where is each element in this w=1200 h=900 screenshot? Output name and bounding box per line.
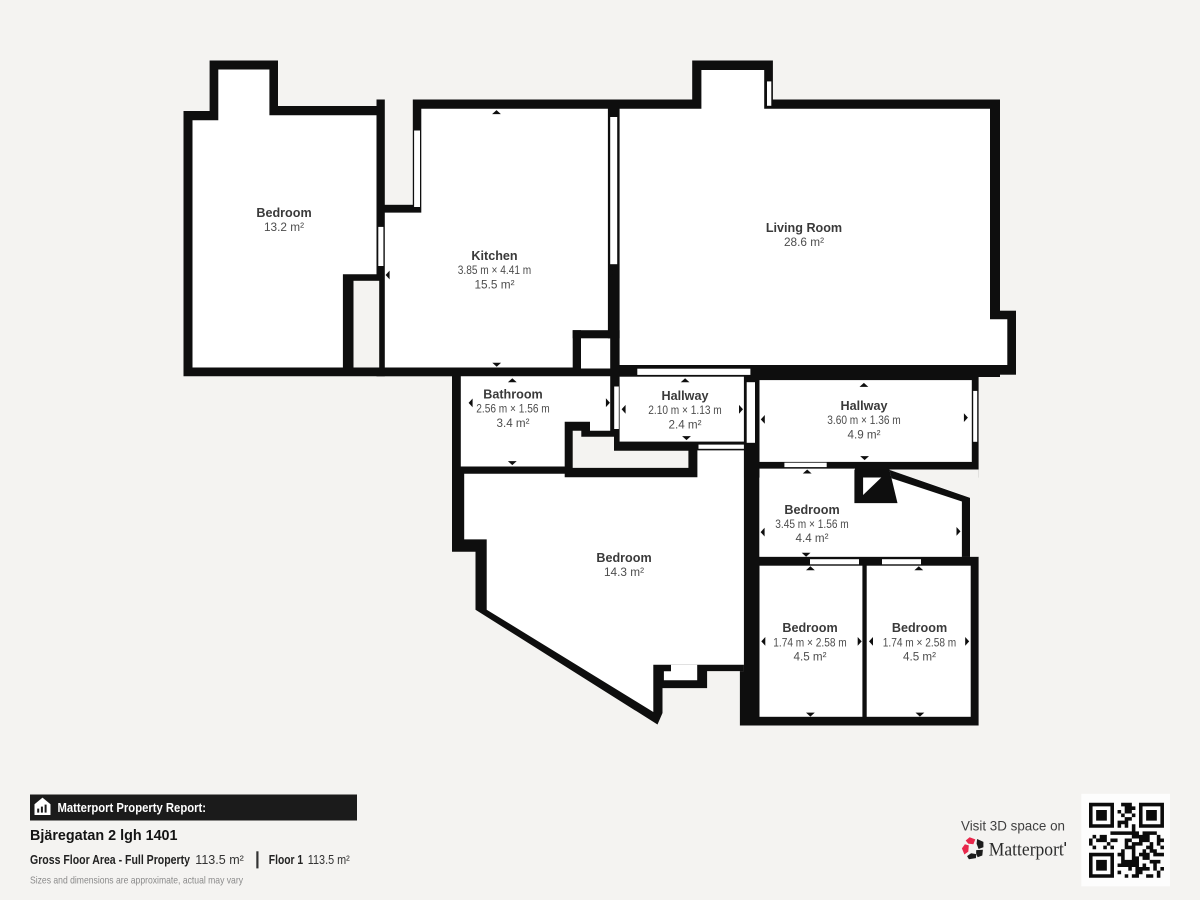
svg-text:Bathroom: Bathroom (483, 388, 542, 402)
svg-text:Bedroom: Bedroom (256, 206, 311, 220)
svg-text:3.4 m²: 3.4 m² (497, 417, 530, 430)
svg-text:4.5 m²: 4.5 m² (794, 651, 827, 664)
svg-text:Bedroom: Bedroom (782, 621, 837, 635)
svg-text:Kitchen: Kitchen (471, 249, 517, 263)
svg-text:3.85 m × 4.41 m: 3.85 m × 4.41 m (458, 264, 532, 277)
svg-text:Bjäregatan 2 lgh 1401: Bjäregatan 2 lgh 1401 (30, 827, 178, 844)
svg-text:Matterport: Matterport (989, 840, 1065, 861)
svg-text:Hallway: Hallway (841, 399, 888, 413)
svg-text:Bedroom: Bedroom (892, 621, 947, 635)
svg-text:4.4 m²: 4.4 m² (796, 532, 829, 545)
svg-text:Gross Floor Area - Full Proper: Gross Floor Area - Full Property (30, 853, 190, 867)
svg-text:Floor 1: Floor 1 (269, 853, 303, 867)
svg-text:1.74 m × 2.58 m: 1.74 m × 2.58 m (773, 636, 847, 649)
svg-text:Visit 3D space on: Visit 3D space on (961, 817, 1065, 833)
svg-text:Hallway: Hallway (662, 389, 709, 403)
svg-text:14.3 m²: 14.3 m² (604, 566, 644, 579)
svg-text:Matterport Property Report:: Matterport Property Report: (58, 801, 207, 815)
svg-text:4.9 m²: 4.9 m² (848, 428, 881, 441)
svg-text:4.5 m²: 4.5 m² (903, 651, 936, 664)
svg-text:15.5 m²: 15.5 m² (475, 278, 515, 291)
svg-text:1.74 m × 2.58 m: 1.74 m × 2.58 m (883, 636, 957, 649)
svg-text:2.56 m × 1.56 m: 2.56 m × 1.56 m (476, 403, 550, 416)
svg-text:Sizes and dimensions are appro: Sizes and dimensions are approximate, ac… (30, 875, 244, 887)
svg-text:Bedroom: Bedroom (784, 503, 839, 517)
svg-text:3.45 m × 1.56 m: 3.45 m × 1.56 m (775, 518, 849, 531)
svg-text:Living Room: Living Room (766, 221, 842, 235)
svg-text:113.5 m²: 113.5 m² (195, 853, 244, 867)
svg-text:113.5 m²: 113.5 m² (308, 853, 350, 867)
svg-text:13.2 m²: 13.2 m² (264, 221, 304, 234)
svg-text:2.10 m × 1.13 m: 2.10 m × 1.13 m (648, 404, 722, 417)
svg-text:2.4 m²: 2.4 m² (669, 418, 702, 431)
svg-text:Bedroom: Bedroom (596, 551, 651, 565)
svg-text:28.6 m²: 28.6 m² (784, 236, 824, 249)
svg-text:3.60 m × 1.36 m: 3.60 m × 1.36 m (827, 414, 901, 427)
